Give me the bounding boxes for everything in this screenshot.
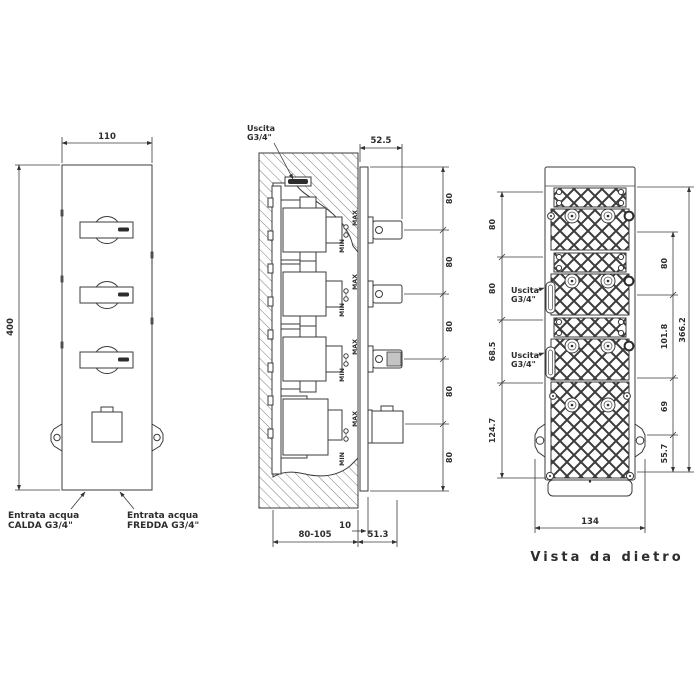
side-handle-2 xyxy=(368,281,402,307)
front-left-ear-hole xyxy=(54,434,60,440)
min-label: MIN xyxy=(339,452,346,466)
side-outlet-label-line2: G3/4" xyxy=(247,133,272,142)
spacing-dim-4: 80 xyxy=(445,386,454,398)
back-left-dim-4: 124.7 xyxy=(488,418,497,443)
min-label: MIN xyxy=(339,303,346,317)
min-label: MIN xyxy=(339,368,346,382)
bottom-unit xyxy=(281,396,342,458)
back-outlet2-label-line2: G3/4" xyxy=(511,360,536,369)
side-handle-3 xyxy=(368,346,402,372)
back-right-ear-hole xyxy=(636,437,644,445)
front-outlet-box xyxy=(92,407,122,442)
back-left-dim-3: 68.5 xyxy=(488,341,497,361)
back-left-ear-hole xyxy=(536,437,544,445)
back-right-dim-2: 101.8 xyxy=(660,323,669,349)
cold-inlet-label-line2: FREDDA G3/4" xyxy=(127,521,199,531)
lattice-strip-1 xyxy=(554,188,626,207)
max-label: MAX xyxy=(352,339,359,355)
side-outlet-box xyxy=(368,406,403,443)
recess-depth-dim: 80-105 xyxy=(298,530,331,540)
side-view: MAX MIN MAX MIN MAX MIN MAX MIN Uscita G… xyxy=(247,124,454,547)
handle-dim: 52.5 xyxy=(371,136,392,146)
bottom-cap-dot xyxy=(589,480,591,482)
back-view-caption: Vista da dietro xyxy=(530,550,683,565)
side-handle-1 xyxy=(368,217,402,243)
back-right-dim-3: 69 xyxy=(660,401,669,413)
back-left-dim-1: 80 xyxy=(488,219,497,231)
back-outlet-slot-2 xyxy=(546,347,555,378)
trim-plate xyxy=(360,167,368,491)
max-label: MAX xyxy=(352,210,359,226)
min-label: MIN xyxy=(339,239,346,253)
cold-inlet-leader xyxy=(120,492,134,509)
hot-inlet-label-line2: CALDA G3/4" xyxy=(8,521,73,531)
lattice-panel-3 xyxy=(551,339,629,380)
back-outlet-slot-1 xyxy=(546,282,555,313)
top-outlet-port xyxy=(288,179,308,184)
plate-thickness-dim: 10 xyxy=(339,521,351,531)
side-outlet-label-line1: Uscita xyxy=(247,124,275,133)
lattice-strip-3 xyxy=(554,318,626,337)
lattice-panel-2 xyxy=(551,274,629,315)
spacing-dim-5: 80 xyxy=(445,452,454,464)
max-label: MAX xyxy=(352,411,359,427)
technical-drawing-page: 110 400 Entrata acqua CALDA G3/4" Entrat… xyxy=(0,0,700,700)
cartridge-3 xyxy=(281,326,342,392)
back-right-dim-4: 55.7 xyxy=(660,444,669,464)
spacing-dim-2: 80 xyxy=(445,256,454,268)
back-total-dim: 366.2 xyxy=(678,317,687,342)
max-label: MAX xyxy=(352,274,359,290)
back-outlet1-label-line2: G3/4" xyxy=(511,295,536,304)
cold-inlet-label-line1: Entrata acqua xyxy=(127,511,198,521)
front-height-dim: 400 xyxy=(6,318,16,336)
lattice-strip-2 xyxy=(554,253,626,272)
front-right-ear-hole xyxy=(154,434,160,440)
hot-inlet-leader xyxy=(71,492,85,509)
protrusion-dim: 51.3 xyxy=(368,530,389,540)
spacing-dim-3: 80 xyxy=(445,321,454,333)
hot-inlet-label-line1: Entrata acqua xyxy=(8,511,79,521)
cartridge-2 xyxy=(281,261,342,327)
back-view: Uscita G3/4" Uscita G3/4" 80 80 68.5 124… xyxy=(488,167,694,565)
front-width-dim: 110 xyxy=(98,132,116,142)
back-left-dim-2: 80 xyxy=(488,283,497,295)
back-width-dim: 134 xyxy=(581,517,599,527)
back-right-dim-1: 80 xyxy=(660,258,669,270)
lattice-panel-bottom xyxy=(551,382,629,478)
spacing-dim-1: 80 xyxy=(445,193,454,205)
lattice-panel-1 xyxy=(551,209,629,250)
front-view: 110 400 Entrata acqua CALDA G3/4" Entrat… xyxy=(6,132,199,531)
valve-technical-drawing: 110 400 Entrata acqua CALDA G3/4" Entrat… xyxy=(0,0,700,700)
